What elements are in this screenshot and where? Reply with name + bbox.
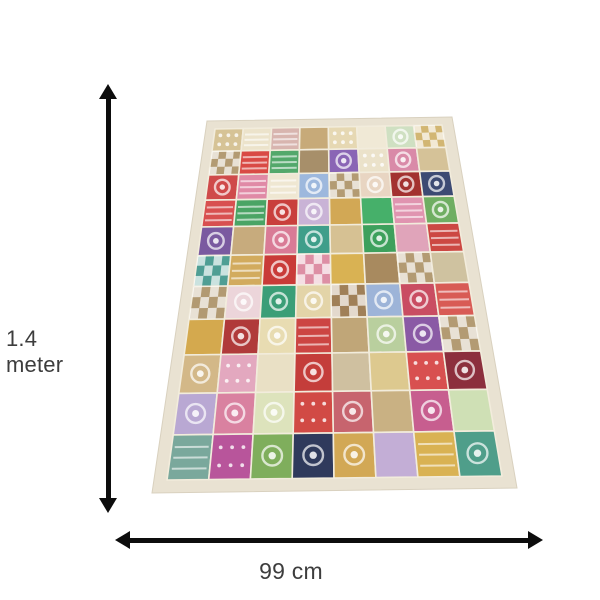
arrow-right-icon <box>528 531 543 549</box>
vertical-arrow-line <box>106 96 111 500</box>
arrow-down-icon <box>99 498 117 513</box>
horizontal-arrow-line <box>128 538 530 543</box>
tapestry-photo <box>0 0 600 600</box>
product-dimension-figure: 1.4 meter 99 cm <box>0 0 600 600</box>
width-label: 99 cm <box>229 558 353 585</box>
height-label: 1.4 meter <box>6 326 98 378</box>
